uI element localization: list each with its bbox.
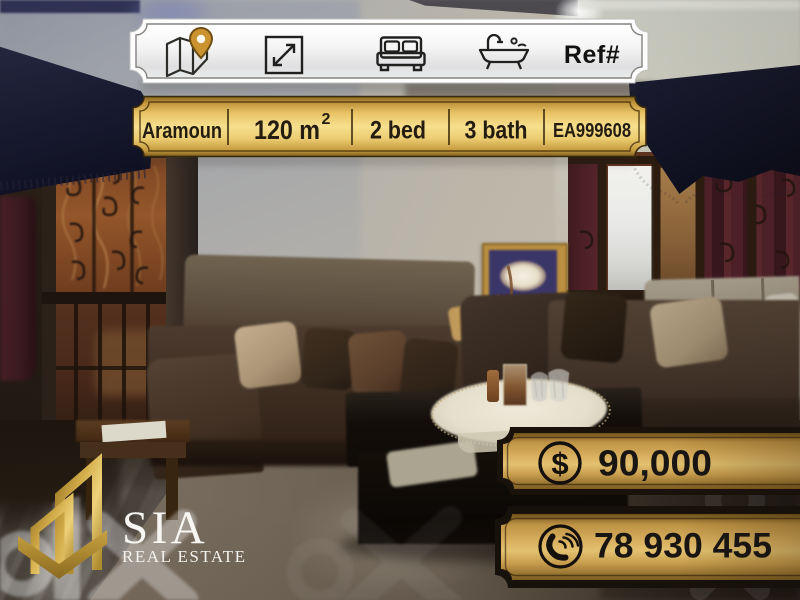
svg-text:EA999608: EA999608 (553, 120, 631, 142)
svg-text:120 m: 120 m (254, 115, 320, 145)
svg-text:90,000: 90,000 (598, 443, 712, 484)
svg-text:78 930 455: 78 930 455 (594, 526, 772, 566)
svg-text:2: 2 (322, 111, 331, 128)
svg-text:$: $ (551, 446, 568, 481)
svg-text:Aramoun: Aramoun (142, 118, 222, 143)
svg-text:3 bath: 3 bath (465, 117, 528, 145)
svg-text:2 bed: 2 bed (370, 117, 426, 145)
